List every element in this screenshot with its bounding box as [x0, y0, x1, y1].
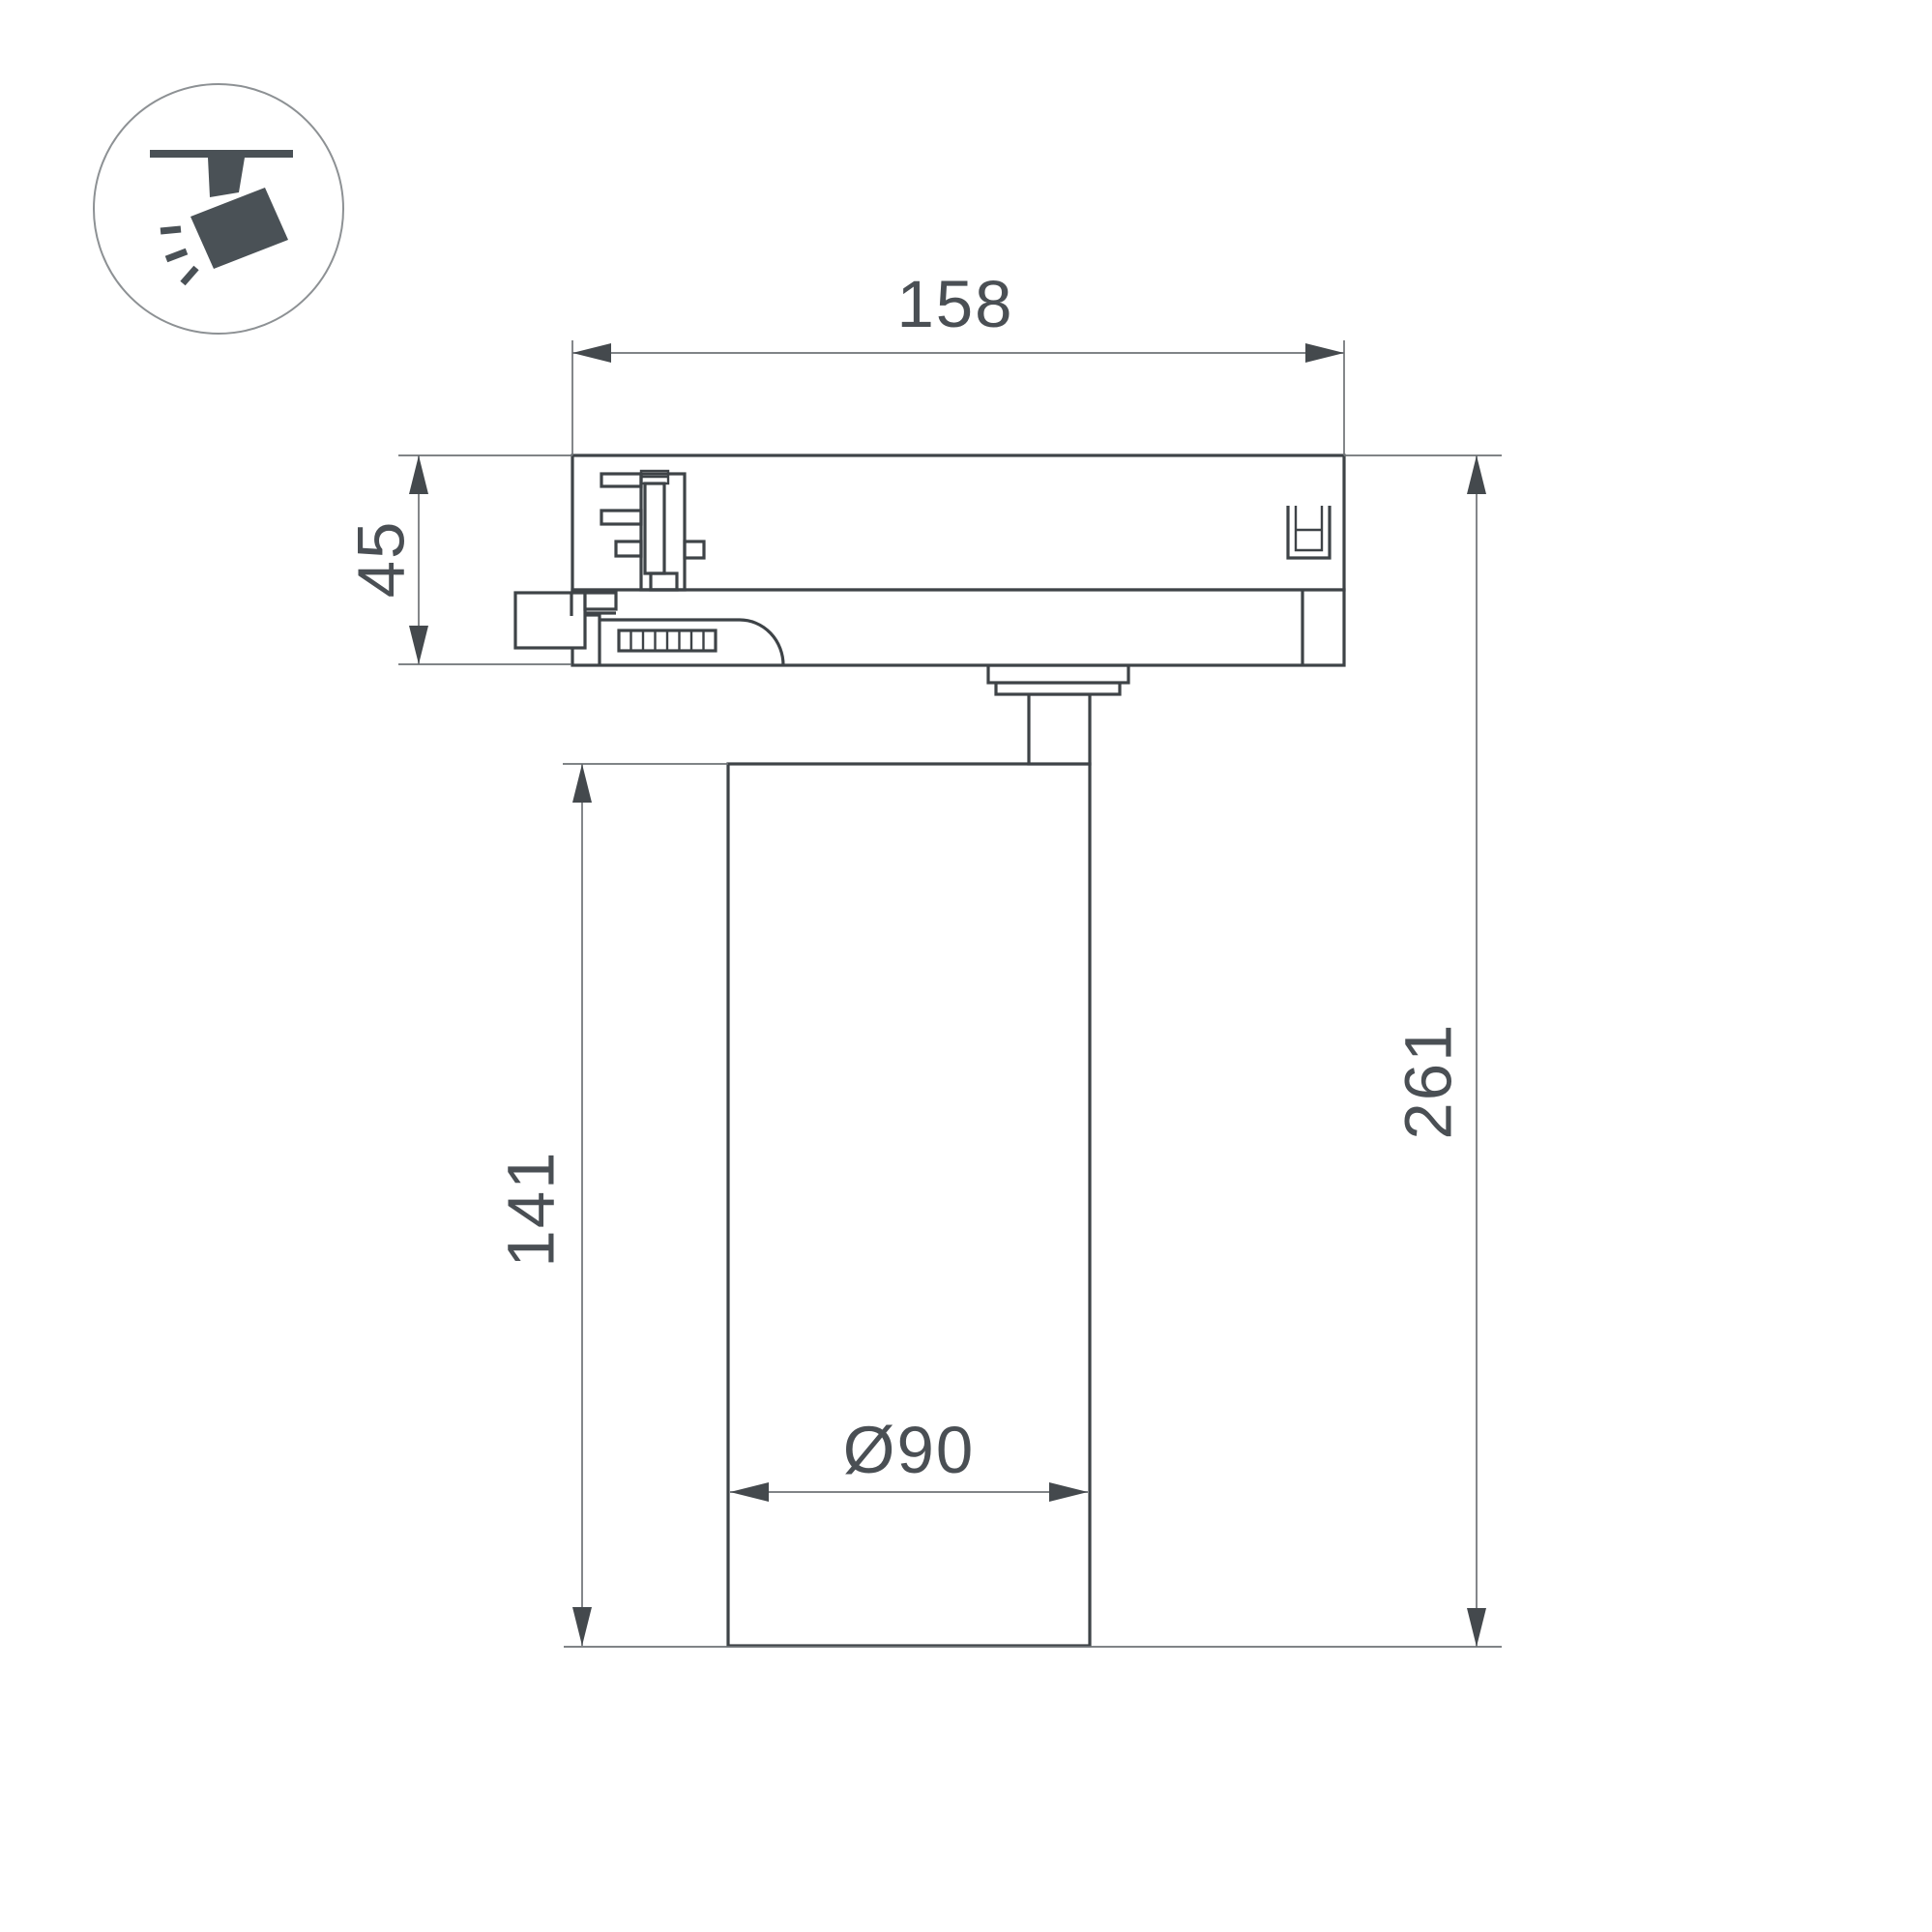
- dimension-total-height: 261: [1344, 455, 1502, 1647]
- dimension-label-total-height: 261: [1391, 1022, 1466, 1139]
- joint-plate-lower: [996, 683, 1120, 694]
- dimension-label-body-height: 141: [494, 1150, 569, 1267]
- icon-light-ray: [161, 229, 181, 231]
- arrowhead-up: [572, 764, 592, 803]
- dimension-label-body-diameter: Ø90: [843, 1413, 975, 1487]
- arrowhead-left: [572, 343, 611, 363]
- drawing-page: 158 45 141 261: [0, 0, 1932, 1932]
- swivel-stem: [1029, 694, 1090, 764]
- track-adapter-box: [572, 455, 1344, 590]
- joint-plate-upper: [988, 665, 1128, 683]
- latch-tab: [585, 593, 616, 609]
- technical-drawing: 158 45 141 261: [0, 0, 1932, 1932]
- lamp-body: [728, 764, 1090, 1646]
- clamp-block: [515, 593, 585, 648]
- arrowhead-up: [1467, 455, 1486, 494]
- dimension-label-adapter-height: 45: [344, 520, 419, 599]
- arrowhead-right: [1305, 343, 1344, 363]
- arrowhead-down: [409, 626, 428, 664]
- arrowhead-up: [409, 455, 428, 494]
- dimension-body-height: 141: [494, 764, 729, 1646]
- arrowhead-down: [572, 1607, 592, 1646]
- arrowhead-down: [1467, 1608, 1486, 1647]
- track-adapter-skirt: [572, 590, 1344, 665]
- dimension-label-adapter-width: 158: [896, 267, 1013, 341]
- icon-track-bar: [150, 150, 293, 158]
- track-spotlight-icon: [94, 84, 343, 334]
- dimension-adapter-width: 158: [572, 267, 1344, 455]
